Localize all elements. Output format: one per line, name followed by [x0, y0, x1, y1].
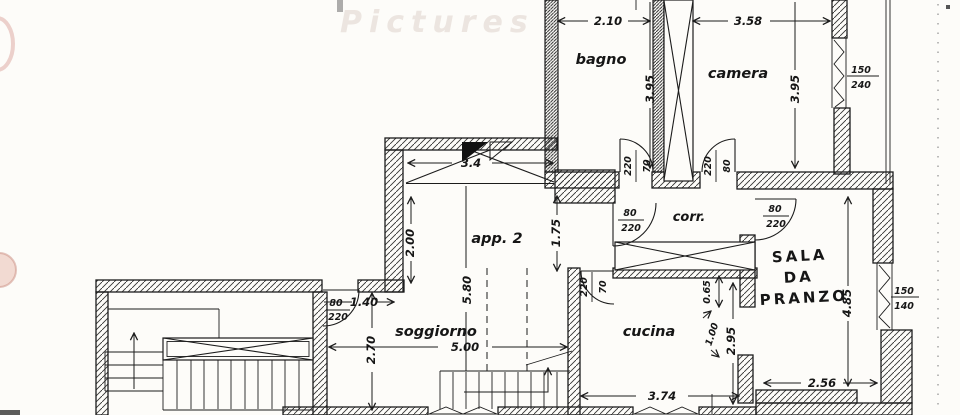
svg-text:220: 220 — [328, 312, 348, 323]
dim-camera-width: 3.58 — [734, 14, 762, 28]
scan-artifact-top-mark — [337, 0, 343, 12]
scan-artifact-binder-holes — [0, 18, 16, 287]
scan-artifact-corner — [0, 410, 20, 415]
window-label-camera: 150 240 — [851, 65, 871, 91]
facade-line — [886, 0, 890, 184]
dim-cucina-height: 2.95 — [724, 327, 738, 355]
svg-text:240: 240 — [851, 80, 871, 91]
scanned-floor-plan-page: Pictures — [0, 0, 960, 415]
room-label-app2: app. 2 — [471, 231, 522, 247]
door-label-camera: 80 220 — [703, 150, 733, 182]
room-label-cucina: cucina — [623, 324, 676, 340]
room-label-corridor: corr. — [673, 210, 706, 225]
room-label-bagno: bagno — [576, 52, 627, 68]
svg-text:220: 220 — [703, 156, 714, 176]
dim-soggiorno-width: 5.00 — [451, 340, 479, 354]
dim-app2-height: 5.80 — [460, 276, 474, 304]
floor-plan-svg: Pictures — [0, 0, 960, 415]
svg-text:70: 70 — [598, 280, 609, 294]
dim-app2-width: 3.4 — [461, 156, 481, 170]
dim-app2-left: 2.00 — [403, 229, 417, 257]
watermark-text: Pictures — [340, 5, 535, 40]
dim-camera-height: 3.95 — [788, 75, 802, 103]
room-label-soggiorno: soggiorno — [395, 324, 477, 340]
dim-bagno-width: 2.10 — [594, 14, 622, 28]
dim-passage-offset: 0.65 — [702, 280, 713, 304]
svg-text:80: 80 — [623, 208, 637, 219]
stairs-internal-up-arrow — [464, 368, 548, 392]
svg-text:220: 220 — [579, 277, 590, 297]
room-label-camera: camera — [708, 66, 768, 82]
dim-cucina-width: 3.74 — [648, 389, 676, 403]
room-label-sala-da-pranzo: SALA DA PRANZO — [757, 245, 848, 310]
svg-text:80: 80 — [768, 204, 782, 215]
svg-text:150: 150 — [851, 65, 871, 76]
door-label-corridor-right: 80 220 — [763, 204, 789, 230]
dim-soggiorno-height: 2.70 — [364, 336, 378, 364]
svg-text:SALA: SALA — [771, 246, 827, 267]
svg-text:DA: DA — [783, 267, 814, 287]
closet-brace-corridor — [615, 242, 755, 270]
dim-entrance-width: 1.40 — [350, 295, 378, 309]
dim-bagno-height: 3.95 — [643, 75, 657, 103]
svg-text:80: 80 — [722, 159, 733, 173]
dim-app2-right: 1.75 — [549, 219, 563, 247]
door-label-corridor-left: 80 220 — [618, 208, 644, 234]
stairs-main — [105, 309, 313, 410]
door-label-entrance: 80 220 — [324, 298, 352, 323]
scan-artifact-dot — [946, 5, 950, 9]
dim-passage-width: 1.00 — [704, 321, 722, 347]
svg-text:220: 220 — [623, 156, 634, 176]
svg-text:220: 220 — [621, 223, 641, 234]
window-label-sala: 150 140 — [894, 286, 914, 312]
svg-text:220: 220 — [766, 219, 786, 230]
svg-text:PRANZO: PRANZO — [759, 287, 848, 310]
svg-text:70: 70 — [642, 159, 653, 173]
svg-text:140: 140 — [894, 301, 914, 312]
dim-sala-width: 2.56 — [808, 376, 836, 390]
dim-sala-height: 4.85 — [840, 289, 854, 318]
partition-brace — [664, 0, 693, 181]
svg-text:80: 80 — [329, 298, 343, 309]
svg-text:150: 150 — [894, 286, 914, 297]
